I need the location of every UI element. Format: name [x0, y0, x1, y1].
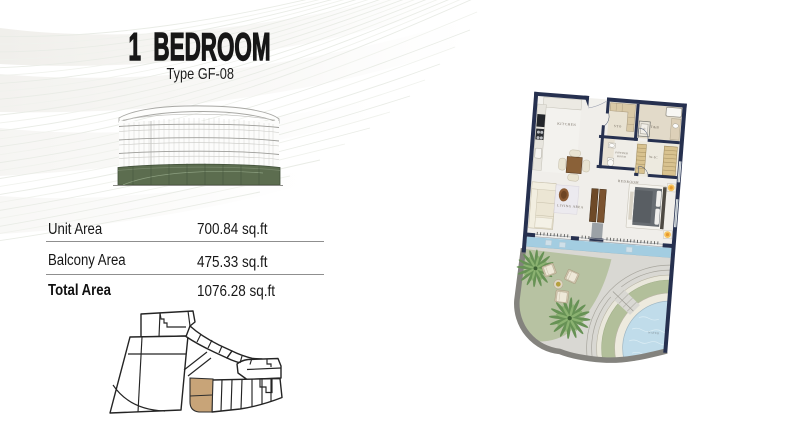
svg-text:T&B: T&B: [650, 125, 659, 130]
svg-text:W-IC: W-IC: [649, 155, 658, 160]
svg-text:STO: STO: [614, 124, 622, 129]
